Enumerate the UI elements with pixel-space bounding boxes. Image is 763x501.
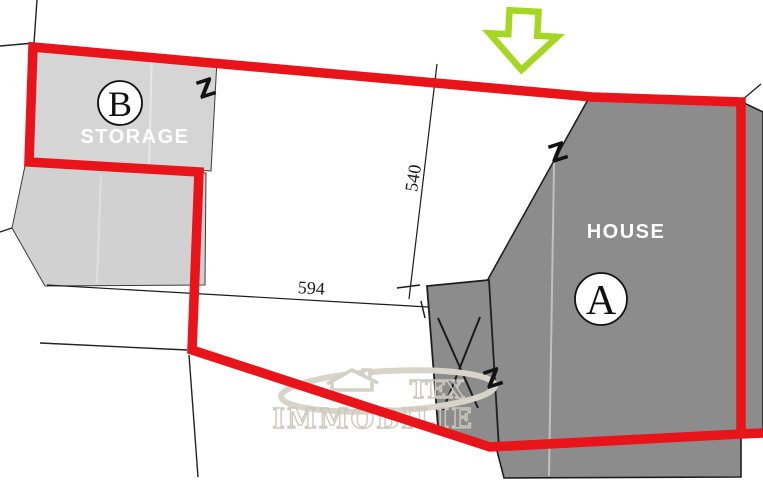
dimension-540-label: 540 [401,163,425,193]
parcel-a-marker: A [575,273,627,325]
parcel-below-storage-region [12,161,206,286]
dimension-594-label: 594 [297,277,325,299]
parcel-a-marker-letter: A [586,278,617,324]
watermark-text-line1: TEX [410,375,465,404]
site-plan-canvas: 540 594 TEX IMMOBILIE Z Z Z B A STORAGE … [0,0,763,501]
parcel-b-marker-letter: B [108,84,132,124]
parcel-b-marker: B [98,81,142,125]
storage-label: STORAGE [80,126,189,148]
house-label: HOUSE [587,221,666,243]
site-plan-drawing: 540 594 TEX IMMOBILIE Z Z Z B A STORAGE … [0,0,763,501]
